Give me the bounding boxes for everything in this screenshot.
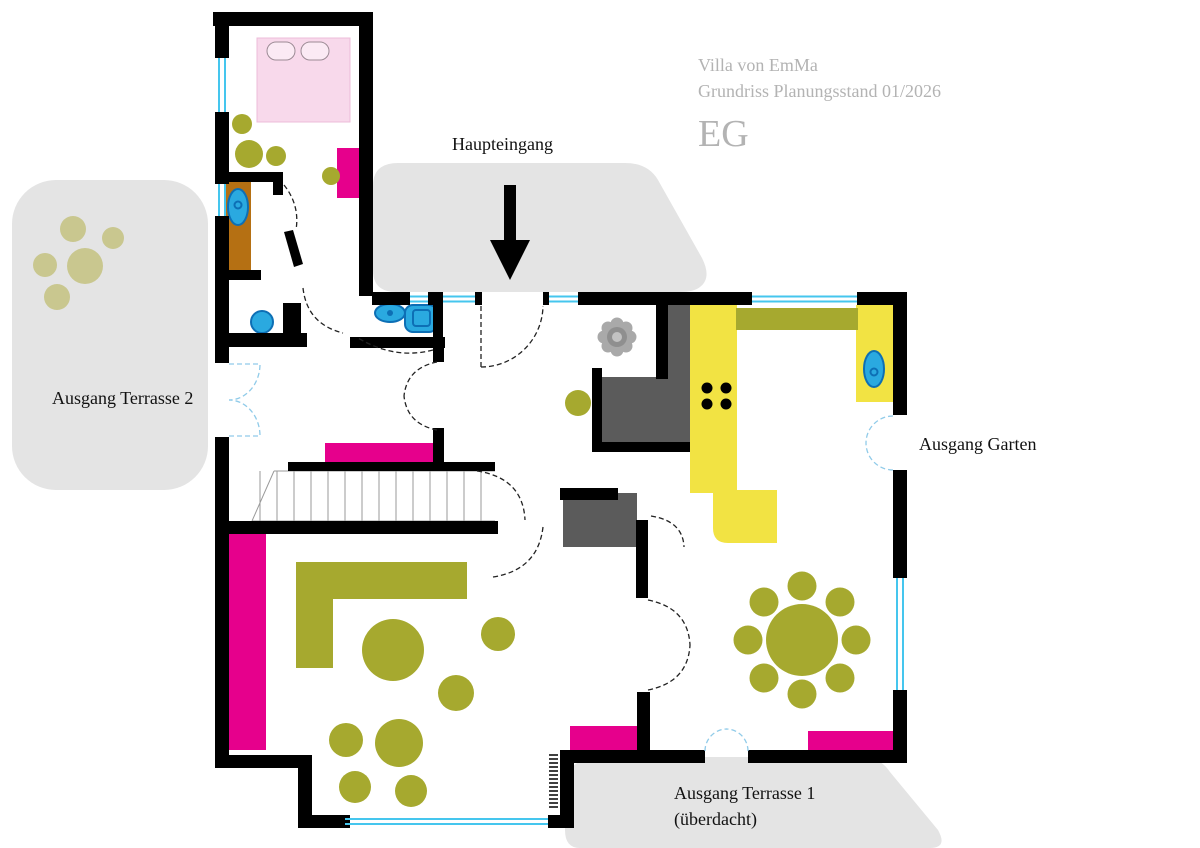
label-exit-terrace-2: Ausgang Terrasse 2 [52,388,193,409]
radiator-icon [549,755,558,807]
hall-sideboard [325,443,437,463]
bedroom-door [284,185,303,267]
window [443,297,475,302]
title-block: Villa von EmMa Grundriss Planungsstand 0… [698,52,941,156]
window [549,297,578,302]
stairs [252,471,495,521]
kitchen-door [651,516,684,547]
gray-flower-icon [598,318,637,357]
plan-subtitle: Grundriss Planungsstand 01/2026 [698,78,941,104]
label-exit-garden: Ausgang Garten [919,434,1036,455]
label-main-entrance: Haupteingang [452,134,553,155]
label-exit-terrace-1-line2: (überdacht) [674,806,815,832]
sideboard-bottom-right [808,731,893,752]
sideboard-bottom-center [570,726,637,750]
fireplace-block [563,493,648,574]
entry-door-swing [481,306,543,367]
entrance-canopy [373,163,707,292]
label-exit-terrace-1: Ausgang Terrasse 1 (überdacht) [674,780,815,832]
bed [257,38,350,122]
label-exit-terrace-1-line1: Ausgang Terrasse 1 [674,780,815,806]
window [410,297,428,302]
hall-plant-icon [565,390,591,416]
coffee-table-icon [362,619,424,681]
pillow-icon [301,42,329,60]
sideboard-left [229,531,266,750]
kitchen-counters [690,303,893,543]
window [219,58,225,112]
floor-plan: Villa von EmMa Grundriss Planungsstand 0… [0,0,1200,848]
pillow-icon [267,42,295,60]
desk-chair-icon [322,167,340,185]
window [219,184,225,216]
window [897,578,903,690]
terrace-1-door [705,729,748,751]
terrace-2-door [229,364,260,436]
hall-double-door [404,362,437,430]
dining-table [734,572,871,709]
kitchen-worktop [736,308,858,330]
kitchen-sink-icon [864,351,884,387]
garden-door [866,416,893,470]
wc-sink-icon [375,304,405,322]
terrace-2-area [12,180,208,490]
bedroom-desk [337,148,360,198]
toilet-icon [405,305,437,332]
floor-plan-svg [0,0,1200,848]
project-title: Villa von EmMa [698,52,941,78]
floor-label: EG [698,112,941,156]
dining-double-door [648,600,690,690]
window [752,297,857,302]
window [345,819,548,824]
